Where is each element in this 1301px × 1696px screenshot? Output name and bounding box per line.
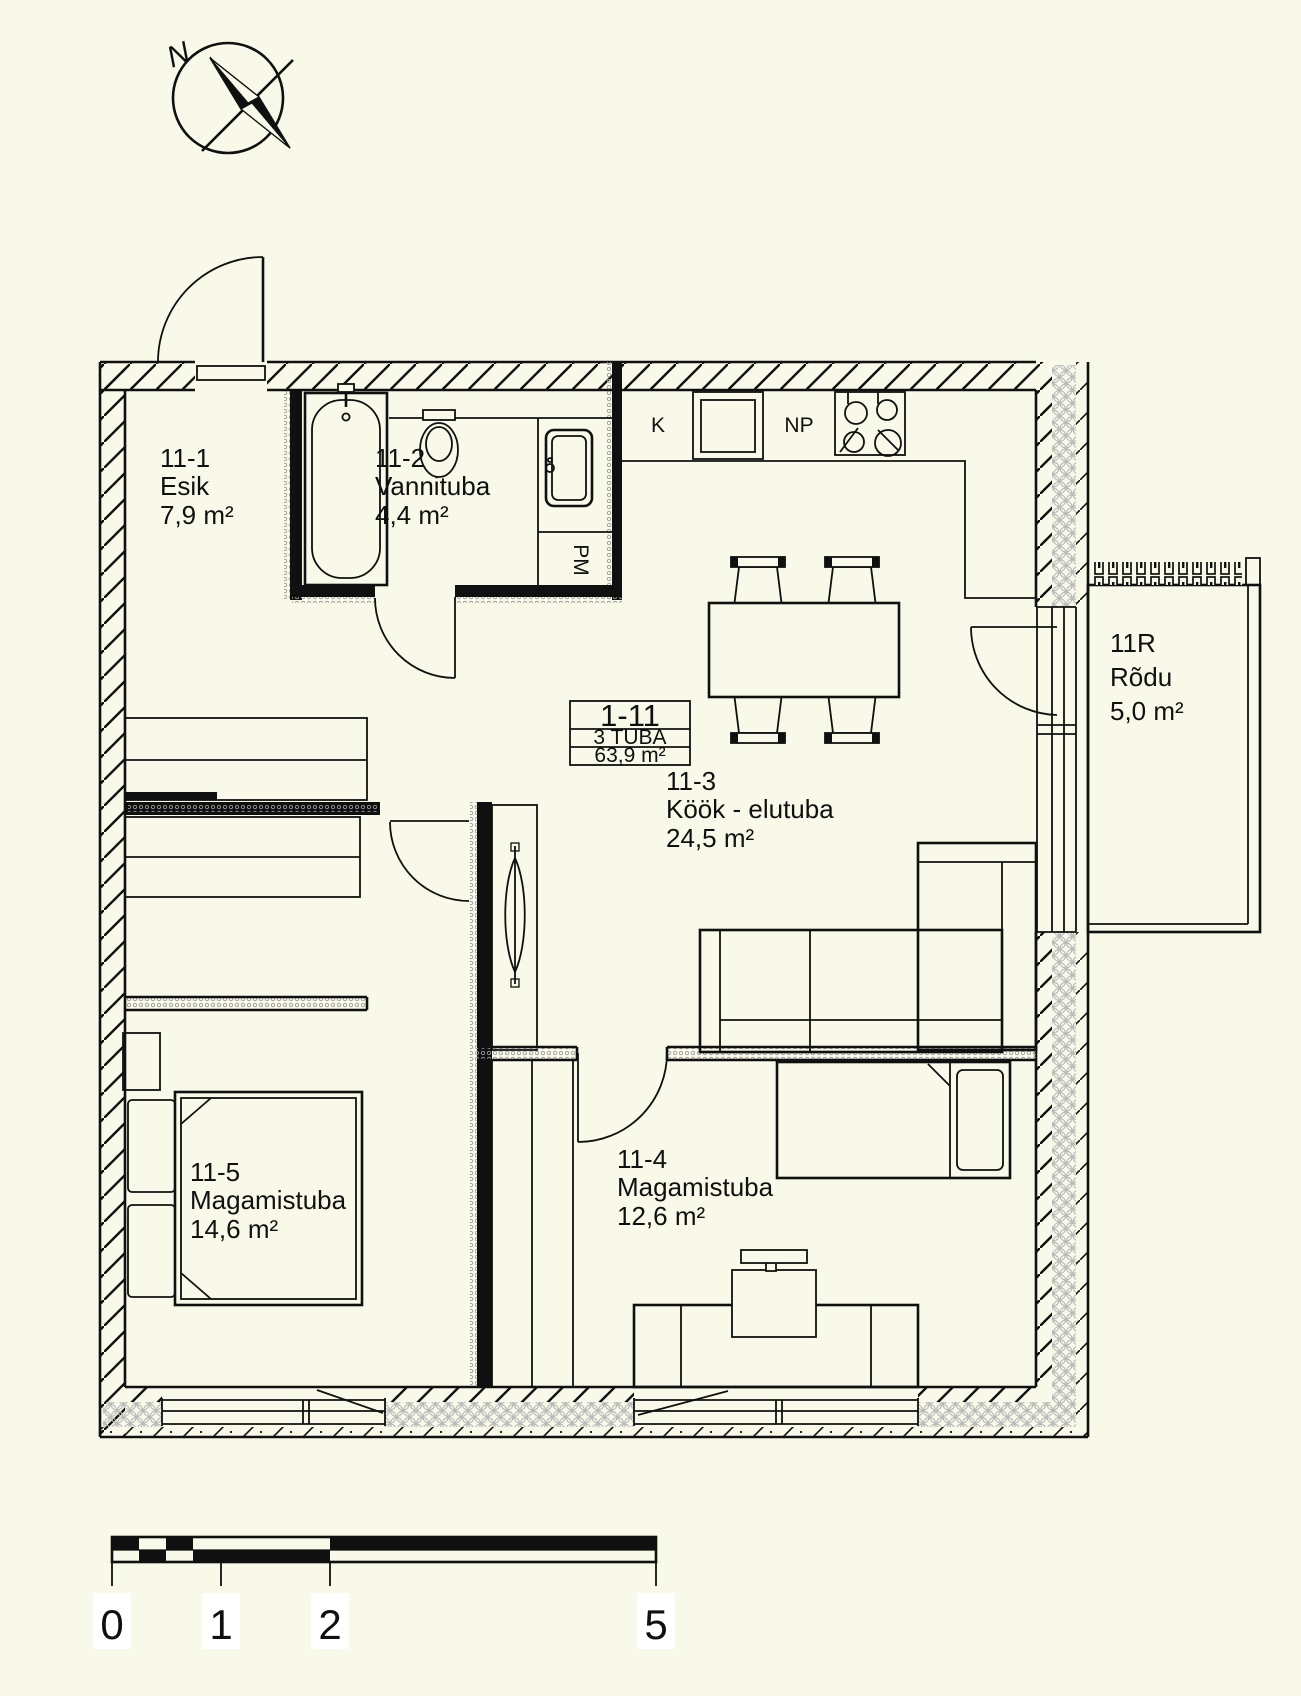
entrance-door-swing-arc <box>158 257 263 362</box>
room-area: 24,5 m² <box>666 823 754 853</box>
room-label-rodu: 11R Rõdu 5,0 m² <box>1110 628 1184 726</box>
compass-rose-icon: N <box>162 36 293 153</box>
window-bedroom-11-5 <box>162 1390 385 1426</box>
scale-tick-0: 0 <box>100 1601 123 1648</box>
window-balcony-wall <box>1037 607 1076 932</box>
sofa <box>700 843 1036 1052</box>
bathroom-wall-bottom-right <box>455 585 622 597</box>
hall-door-swing-arc <box>390 822 469 901</box>
pillow <box>957 1070 1003 1170</box>
desk-chair <box>732 1250 816 1337</box>
entrance-threshold <box>197 366 265 380</box>
pillow <box>128 1100 175 1192</box>
room-id: 11-4 <box>617 1144 667 1174</box>
stove-label: NP <box>784 414 813 437</box>
room-area: 4,4 m² <box>375 500 449 530</box>
bathroom-wall-right <box>612 362 622 600</box>
balcony-railing <box>1094 562 1242 585</box>
dining-set <box>709 557 899 743</box>
room-id: 11R <box>1110 628 1156 658</box>
room-label-magamistuba-11-4: 11-4 Magamistuba 12,6 m² <box>617 1144 774 1231</box>
floor-plan-drawing: N <box>0 0 1301 1696</box>
toilet <box>420 410 458 477</box>
bedroom-5-inner-wall <box>125 997 367 1010</box>
room-name: Vannituba <box>375 471 491 501</box>
washing-machine-label: PM <box>569 544 592 576</box>
room-name: Köök - elutuba <box>666 794 834 824</box>
room-area: 14,6 m² <box>190 1214 278 1244</box>
scale-bar: 0 1 2 5 <box>93 1537 675 1649</box>
balcony-door <box>971 627 1057 715</box>
room-area: 5,0 m² <box>1110 696 1184 726</box>
wall-left <box>100 362 125 1437</box>
room-area: 7,9 m² <box>160 500 234 530</box>
bathroom-wall-left <box>290 390 302 600</box>
room-id: 11-3 <box>666 766 716 796</box>
bedroom-11-5-furniture <box>123 1033 362 1305</box>
wardrobe-lower <box>125 817 360 897</box>
room-label-magamistuba-11-5: 11-5 Magamistuba 14,6 m² <box>190 1157 347 1244</box>
hall-mirror-strip <box>492 805 537 1050</box>
floor-plan-page: N <box>0 0 1301 1696</box>
scale-tick-5: 5 <box>644 1601 667 1648</box>
scale-tick-2: 2 <box>318 1601 341 1648</box>
room-label-kook-elutuba: 11-3 Köök - elutuba 24,5 m² <box>666 766 834 853</box>
wardrobe-column <box>492 1060 573 1387</box>
room-name: Magamistuba <box>617 1172 774 1202</box>
room-label-esik: 11-1 Esik 7,9 m² <box>160 443 234 530</box>
corridor-partition-wall <box>477 802 492 1387</box>
bedroom-4-door-swing-arc <box>578 1053 667 1142</box>
kitchen-counter <box>622 461 1037 598</box>
unit-info-box: 1-11 3 TUBA 63,9 m² <box>570 698 690 767</box>
balcony-door-swing-arc <box>971 627 1057 715</box>
room-name: Esik <box>160 471 210 501</box>
balcony-railing-end-post <box>1246 558 1260 585</box>
nightstand <box>123 1033 160 1090</box>
bathroom-wall-bottom-left <box>292 585 375 597</box>
stove <box>835 392 905 456</box>
wardrobe-upper <box>125 718 367 800</box>
unit-total-area: 63,9 m² <box>594 744 665 767</box>
room-name: Magamistuba <box>190 1185 347 1215</box>
scale-tick-1: 1 <box>209 1601 232 1648</box>
room-area: 12,6 m² <box>617 1201 705 1231</box>
bathroom: PM <box>284 362 622 678</box>
window-bedroom-11-4 <box>634 1391 918 1426</box>
dining-table <box>709 603 899 697</box>
kitchen-sink <box>693 392 763 459</box>
bathroom-door-swing-arc <box>375 598 455 678</box>
room-id: 11-1 <box>160 443 210 473</box>
single-bed <box>777 1062 1010 1178</box>
exterior-walls <box>100 362 1088 1437</box>
room-id: 11-2 <box>375 443 425 473</box>
balcony <box>1088 558 1260 932</box>
room-name: Rõdu <box>1110 662 1172 692</box>
washing-machine: PM <box>538 532 612 576</box>
north-label: N <box>162 36 195 75</box>
fridge-label: K <box>651 414 665 437</box>
pillow <box>128 1205 175 1297</box>
room-id: 11-5 <box>190 1157 240 1187</box>
wall-top-right <box>267 362 1036 390</box>
